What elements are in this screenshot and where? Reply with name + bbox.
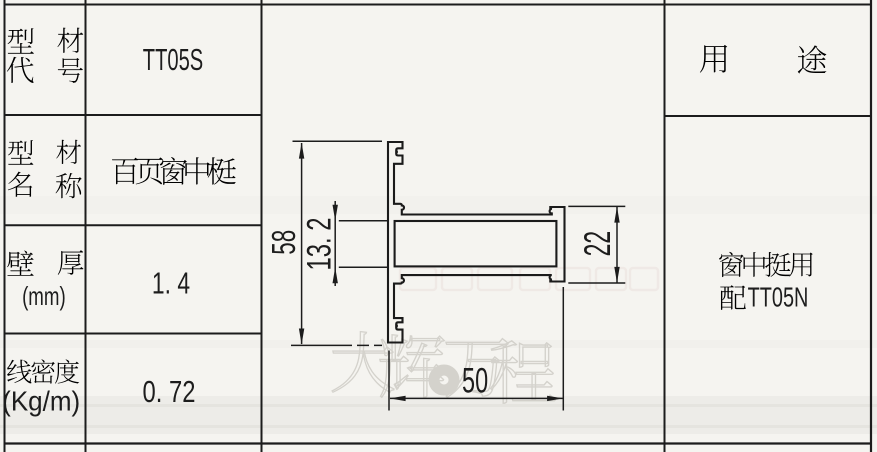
svg-text:50: 50 [462,362,488,401]
svg-text:TT05S: TT05S [143,42,203,78]
svg-text:58: 58 [265,230,302,255]
svg-text:1. 4: 1. 4 [152,266,190,300]
svg-text:TT05N: TT05N [748,282,809,313]
svg-text:22: 22 [577,231,619,257]
svg-text:(Kg/m): (Kg/m) [2,386,80,417]
svg-text:13. 2: 13. 2 [300,218,338,271]
svg-text:0. 72: 0. 72 [143,374,196,409]
svg-text:(mm): (mm) [22,281,66,311]
